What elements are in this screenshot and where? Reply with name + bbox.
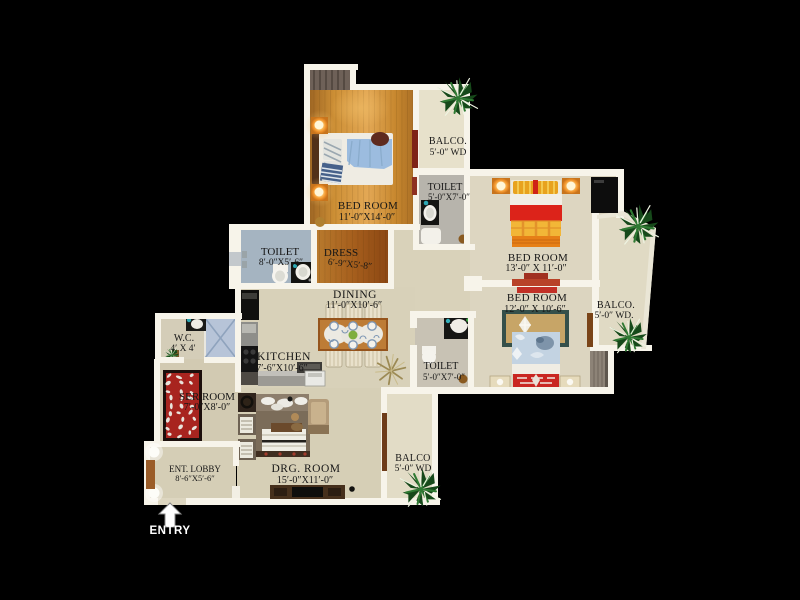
svg-text:DRG. ROOM: DRG. ROOM: [271, 463, 340, 475]
svg-text:W.C.: W.C.: [174, 333, 194, 344]
svg-text:5′-0″X7′-0″: 5′-0″X7′-0″: [423, 372, 465, 382]
svg-text:BED ROOM: BED ROOM: [338, 200, 398, 212]
svg-text:4′ X 4′: 4′ X 4′: [170, 344, 195, 354]
svg-text:KITCHEN: KITCHEN: [257, 351, 311, 363]
svg-text:5′-0″ WD: 5′-0″ WD: [395, 464, 432, 474]
svg-text:BALCO.: BALCO.: [429, 136, 467, 147]
svg-text:13′-0″ X 11′-0″: 13′-0″ X 11′-0″: [505, 263, 566, 274]
svg-text:7′-0″X8′-0″: 7′-0″X8′-0″: [184, 402, 231, 413]
svg-text:BALCO: BALCO: [395, 453, 430, 464]
svg-text:ENTRY: ENTRY: [149, 525, 190, 537]
svg-text:12′-0″ X 10′-6″: 12′-0″ X 10′-6″: [504, 304, 566, 315]
svg-text:11′-0″X14′-0″: 11′-0″X14′-0″: [339, 212, 395, 223]
svg-text:7′-6″X10′-6″: 7′-6″X10′-6″: [256, 363, 308, 374]
svg-text:5′-0″ WD.: 5′-0″ WD.: [594, 311, 633, 321]
svg-text:TOILET: TOILET: [261, 246, 300, 258]
svg-text:11′-0″X10′-6″: 11′-0″X10′-6″: [326, 300, 382, 311]
svg-text:BED ROOM: BED ROOM: [507, 292, 567, 304]
svg-text:5′-0″ WD: 5′-0″ WD: [430, 148, 467, 158]
svg-text:15′-0″X11′-0″: 15′-0″X11′-0″: [277, 475, 333, 486]
svg-text:8′-6″X5′-6″: 8′-6″X5′-6″: [175, 473, 215, 483]
svg-text:5′-0″X7′-0″: 5′-0″X7′-0″: [428, 192, 470, 202]
svg-text:TOILET: TOILET: [424, 361, 459, 372]
svg-text:8′-0″X5′-6″: 8′-0″X5′-6″: [259, 258, 303, 268]
svg-text:BALCO.: BALCO.: [597, 300, 635, 311]
